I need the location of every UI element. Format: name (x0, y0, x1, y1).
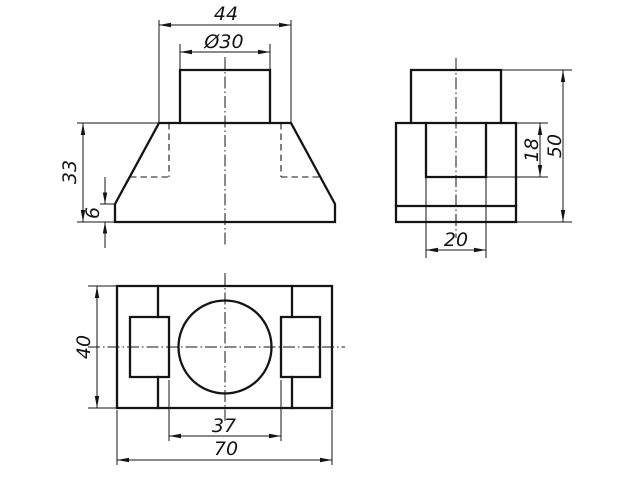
arrowhead (561, 70, 565, 82)
arrowhead (561, 210, 565, 222)
side-slot-outline (426, 123, 486, 177)
arrowhead (180, 50, 192, 54)
arrowhead (159, 23, 171, 27)
arrowhead (538, 123, 542, 135)
arrowhead (169, 434, 181, 438)
top-view: 40 37 70 (73, 273, 345, 465)
engineering-drawing: 44 Ø30 33 6 (0, 0, 640, 480)
arrowhead (95, 396, 99, 408)
arrowhead (538, 165, 542, 177)
arrowhead (103, 193, 107, 205)
arrowhead (474, 248, 486, 252)
dim-label-boss-diameter: Ø30 (203, 31, 243, 53)
dim-label-slot-depth: 18 (521, 138, 543, 162)
arrowhead (81, 123, 85, 135)
front-dim-base-height: 6 (82, 177, 115, 248)
arrowhead (103, 222, 107, 234)
arrowhead (95, 286, 99, 298)
dim-label-body-height: 33 (59, 160, 81, 184)
arrowhead (426, 248, 438, 252)
dim-label-slot-span: 37 (212, 415, 236, 437)
dim-label-base-height: 6 (82, 207, 104, 219)
dim-label-slot-width: 20 (444, 229, 468, 251)
arrowhead (320, 458, 332, 462)
arrowhead (258, 50, 270, 54)
dim-label-depth: 40 (73, 335, 95, 359)
front-view: 44 Ø30 33 6 (59, 3, 335, 248)
arrowhead (269, 434, 281, 438)
front-dim-body-height: 33 (59, 123, 159, 222)
dim-label-total-height: 50 (544, 134, 566, 158)
arrowhead (117, 458, 129, 462)
dim-label-top-width: 44 (214, 3, 238, 25)
side-view: 20 18 50 (396, 58, 572, 258)
arrowhead (279, 23, 291, 27)
dim-label-overall-width: 70 (214, 438, 238, 460)
